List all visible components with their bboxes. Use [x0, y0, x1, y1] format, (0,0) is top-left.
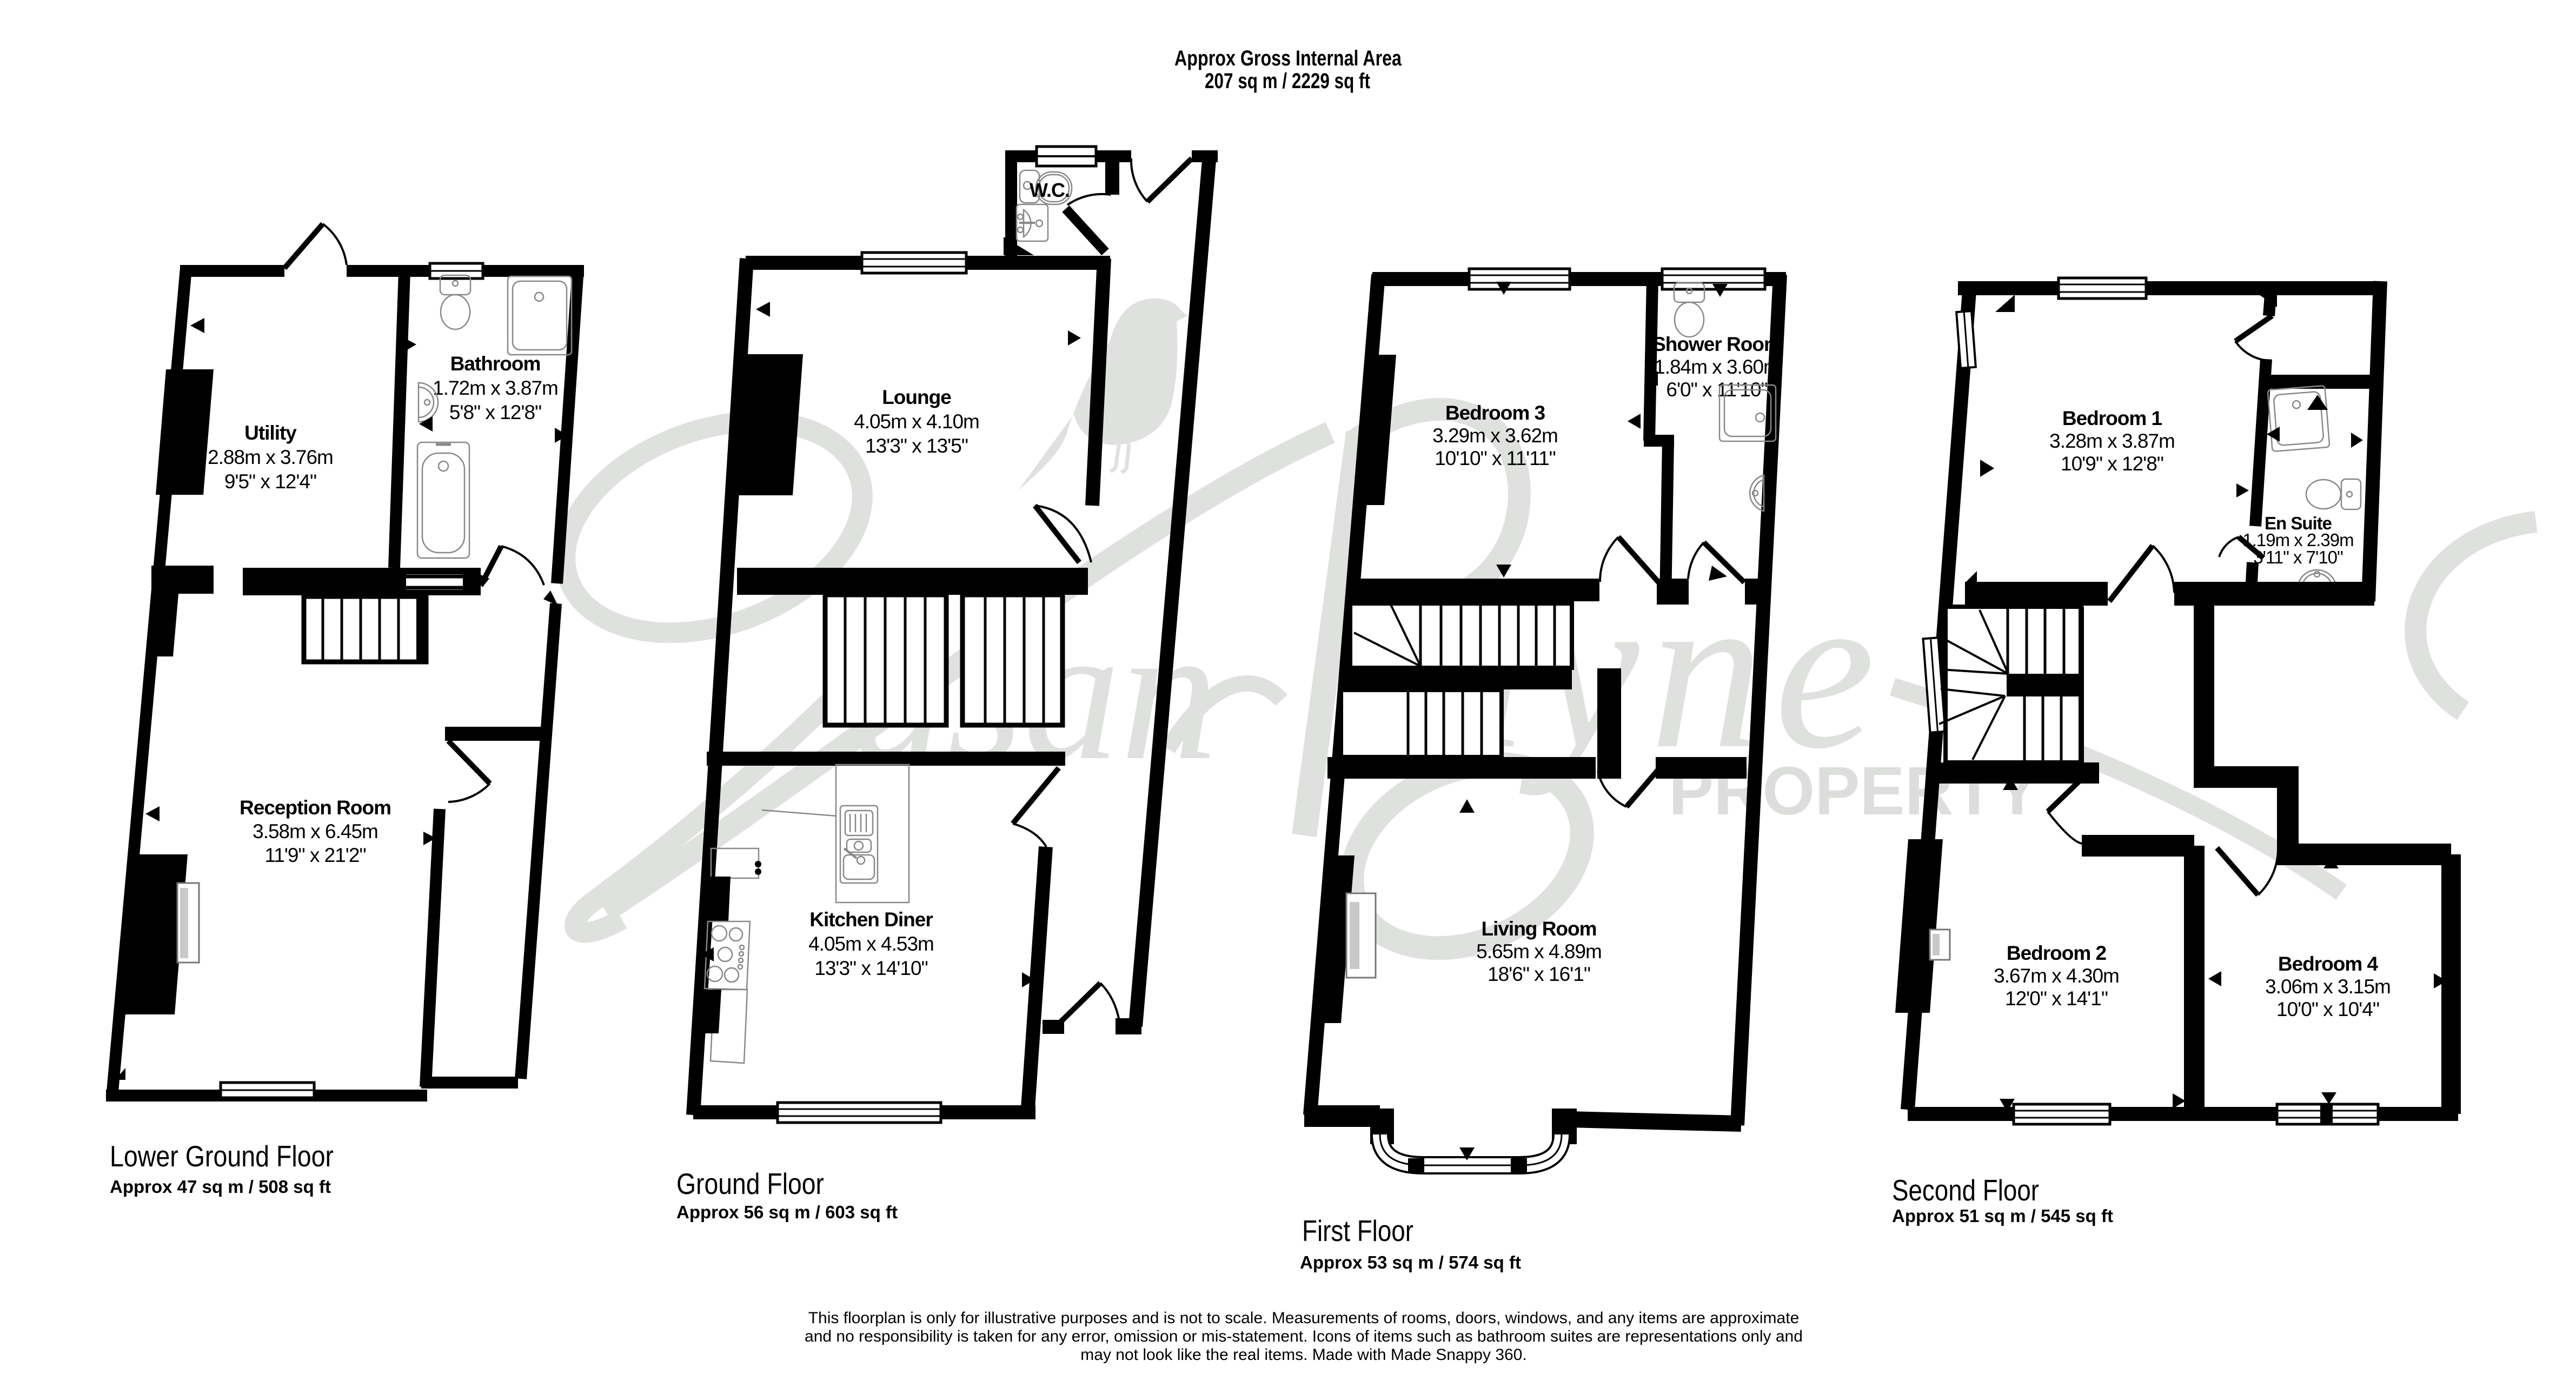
svg-text:Living Room: Living Room	[1481, 918, 1596, 940]
svg-text:Reception Room: Reception Room	[240, 797, 391, 819]
svg-text:Approx 53 sq m / 574 sq ft: Approx 53 sq m / 574 sq ft	[1300, 1252, 1521, 1272]
svg-text:3'11" x 7'10": 3'11" x 7'10"	[2253, 547, 2343, 567]
svg-text:and no responsibility is taken: and no responsibility is taken for any e…	[805, 1328, 1803, 1345]
svg-text:Utility: Utility	[244, 422, 297, 444]
svg-text:3.67m x 4.30m: 3.67m x 4.30m	[1994, 965, 2119, 987]
svg-text:5'8" x 12'8": 5'8" x 12'8"	[449, 401, 541, 423]
svg-text:may not look like the real ite: may not look like the real items. Made w…	[1080, 1346, 1526, 1364]
svg-text:3.06m x 3.15m: 3.06m x 3.15m	[2265, 975, 2391, 998]
svg-text:12'0" x 14'1": 12'0" x 14'1"	[2005, 987, 2108, 1010]
svg-text:Approx 56 sq m / 603 sq ft: Approx 56 sq m / 603 sq ft	[676, 1202, 898, 1222]
svg-text:13'3" x 13'5": 13'3" x 13'5"	[865, 435, 968, 457]
svg-text:Second Floor: Second Floor	[1892, 1173, 2039, 1207]
svg-text:3.58m x 6.45m: 3.58m x 6.45m	[253, 820, 378, 842]
svg-text:10'0" x 10'4": 10'0" x 10'4"	[2276, 998, 2379, 1020]
svg-text:Lounge: Lounge	[882, 386, 951, 408]
svg-text:1.72m x 3.87m: 1.72m x 3.87m	[433, 377, 558, 399]
svg-text:First Floor: First Floor	[1302, 1214, 1413, 1247]
svg-text:9'5" x 12'4": 9'5" x 12'4"	[224, 470, 316, 493]
svg-text:Ground Floor: Ground Floor	[676, 1167, 824, 1200]
svg-text:4.05m x 4.10m: 4.05m x 4.10m	[854, 410, 979, 433]
svg-text:10'10" x 11'11": 10'10" x 11'11"	[1435, 447, 1556, 469]
svg-text:10'9" x 12'8": 10'9" x 12'8"	[2061, 453, 2163, 475]
svg-text:Shower Room: Shower Room	[1652, 333, 1781, 355]
svg-text:5.65m x 4.89m: 5.65m x 4.89m	[1476, 940, 1602, 963]
svg-text:18'6" x 16'1": 18'6" x 16'1"	[1488, 963, 1590, 985]
svg-text:Kitchen Diner: Kitchen Diner	[809, 908, 933, 931]
svg-text:4.05m x 4.53m: 4.05m x 4.53m	[808, 933, 934, 955]
svg-text:Bedroom 1: Bedroom 1	[2062, 407, 2162, 429]
svg-text:This floorplan is only for ill: This floorplan is only for illustrative …	[808, 1309, 1800, 1327]
svg-text:Bedroom 4: Bedroom 4	[2278, 953, 2379, 975]
svg-text:3.28m x 3.87m: 3.28m x 3.87m	[2049, 430, 2175, 452]
svg-text:11'9" x 21'2": 11'9" x 21'2"	[264, 844, 366, 866]
svg-text:13'3" x 14'10": 13'3" x 14'10"	[814, 957, 928, 979]
svg-text:Approx 51 sq m / 545 sq ft: Approx 51 sq m / 545 sq ft	[1892, 1206, 2113, 1226]
svg-text:Bathroom: Bathroom	[450, 353, 541, 375]
svg-text:Bedroom 2: Bedroom 2	[2007, 942, 2107, 964]
svg-text:3.29m x 3.62m: 3.29m x 3.62m	[1432, 424, 1558, 447]
svg-text:Lower Ground Floor: Lower Ground Floor	[110, 1139, 334, 1173]
svg-text:Approx 47 sq m / 508 sq ft: Approx 47 sq m / 508 sq ft	[110, 1177, 331, 1197]
svg-text:2.88m x 3.76m: 2.88m x 3.76m	[208, 446, 333, 468]
svg-text:207 sq m / 2229 sq ft: 207 sq m / 2229 sq ft	[1205, 69, 1370, 93]
svg-text:Approx Gross Internal Area: Approx Gross Internal Area	[1174, 47, 1402, 70]
svg-text:Bedroom 3: Bedroom 3	[1445, 402, 1545, 424]
svg-text:W.C.: W.C.	[1030, 179, 1070, 201]
svg-text:1.84m x 3.60m: 1.84m x 3.60m	[1654, 356, 1780, 378]
